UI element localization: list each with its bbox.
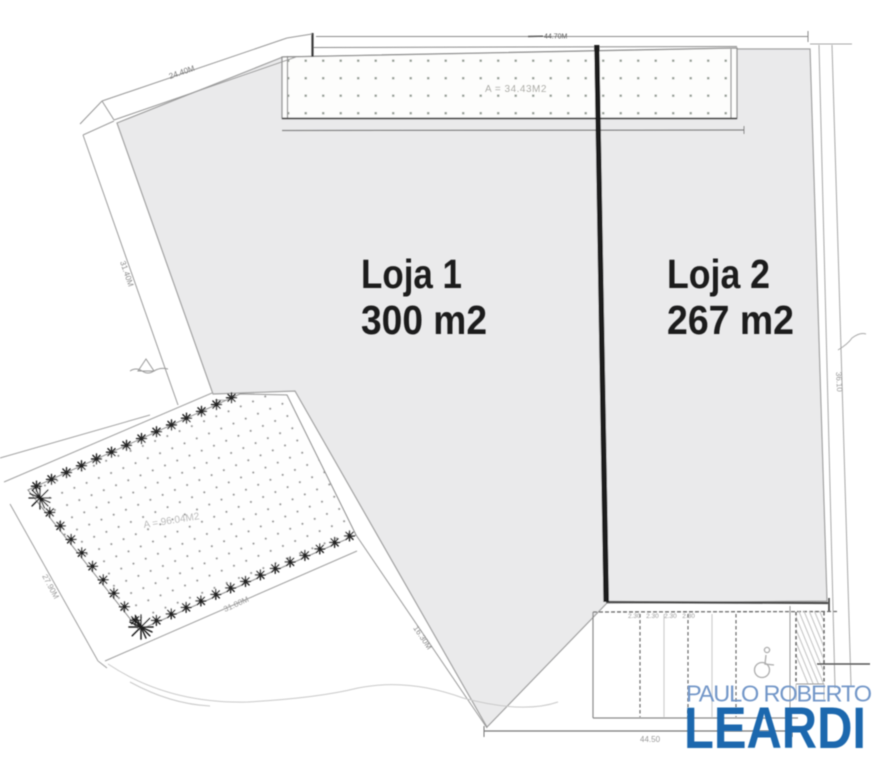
svg-text:27.90M: 27.90M: [40, 573, 61, 601]
svg-text:36.10: 36.10: [834, 372, 844, 393]
svg-text:2.30 2.30 2.30 2.30: 2.30 2.30 2.30 2.30: [628, 613, 695, 620]
svg-text:267 m2: 267 m2: [667, 297, 794, 343]
svg-text:44.70M: 44.70M: [544, 34, 568, 41]
svg-text:Loja 1: Loja 1: [361, 251, 462, 297]
svg-text:300 m2: 300 m2: [361, 297, 487, 343]
svg-text:31.00M: 31.00M: [222, 595, 250, 614]
svg-text:31.40M: 31.40M: [118, 260, 135, 288]
svg-text:LEARDI: LEARDI: [684, 696, 866, 761]
svg-text:24.40M: 24.40M: [168, 64, 196, 81]
svg-text:44.50: 44.50: [640, 735, 661, 744]
svg-text:Loja 2: Loja 2: [667, 251, 770, 297]
svg-text:A = 34.43M2: A = 34.43M2: [485, 84, 547, 95]
